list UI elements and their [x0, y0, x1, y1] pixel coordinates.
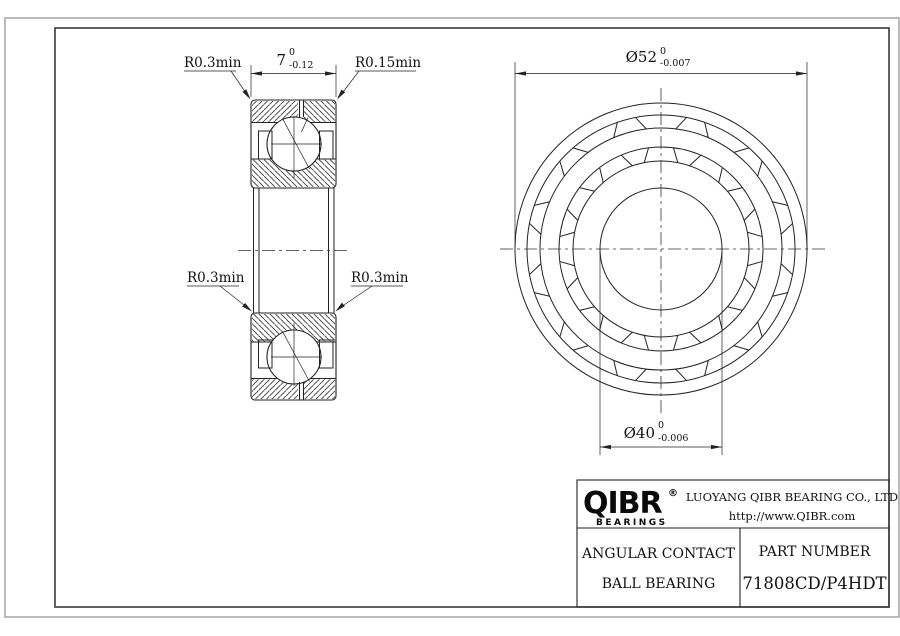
leader-r015-top-right: R0.15min [337, 55, 421, 100]
part-number-value: 71808CD/P4HDT [742, 574, 886, 593]
product-type-line2: BALL BEARING [602, 576, 716, 592]
drawing-page: 7 0 -0.12 R0.3min R0.15min R0.3min R0.3m… [0, 0, 900, 636]
outer-ring-hatch-right [304, 101, 335, 122]
leader-r03-mid-left: R0.3min [187, 270, 252, 312]
logo-subtext: BEARINGS [596, 518, 668, 528]
dim-od-tol-upper: 0 [660, 46, 666, 57]
label-r03: R0.3min [351, 270, 409, 286]
top-ring-section [251, 100, 336, 188]
product-type-line1: ANGULAR CONTACT [581, 546, 736, 562]
company-website: http://www.QIBR.com [729, 509, 856, 523]
right-view-front: Ø52 0 -0.007 Ø40 0 -0.006 [500, 46, 825, 455]
dim-od-tol-lower: -0.007 [660, 58, 690, 69]
dim-bore-tol-upper: 0 [658, 420, 664, 431]
outer-ring-hatch-right [304, 379, 335, 399]
label-r03: R0.3min [184, 55, 242, 71]
bearing-drawing-svg: 7 0 -0.12 R0.3min R0.15min R0.3min R0.3m… [0, 0, 900, 636]
dim-width-tol-upper: 0 [289, 47, 295, 58]
logo-text: QIBR [583, 486, 663, 521]
dim-width-tol-lower: -0.12 [289, 60, 313, 71]
leader-r03-mid-right: R0.3min [336, 270, 409, 312]
part-number-label: PART NUMBER [759, 544, 871, 560]
bottom-ring-section [251, 313, 336, 400]
label-r015: R0.15min [355, 55, 421, 71]
dim-bore-tol-lower: -0.006 [658, 433, 688, 444]
registered-mark-icon: ® [668, 488, 678, 499]
title-block: QIBR ® BEARINGS LUOYANG QIBR BEARING CO.… [577, 480, 898, 607]
company-logo: QIBR ® BEARINGS [583, 486, 678, 528]
leader-r03-top-left: R0.3min [184, 55, 251, 100]
left-view-cross-section: 7 0 -0.12 R0.3min R0.15min R0.3min R0.3m… [184, 47, 421, 400]
label-r03: R0.3min [187, 270, 245, 286]
dim-width-value: 7 [276, 51, 286, 69]
company-name: LUOYANG QIBR BEARING CO., LTD [686, 490, 898, 504]
page-edge-border [5, 18, 899, 617]
dim-od-value: Ø52 [626, 48, 657, 66]
dim-bore-value: Ø40 [624, 424, 655, 442]
dimension-width: 7 0 -0.12 [251, 47, 336, 97]
